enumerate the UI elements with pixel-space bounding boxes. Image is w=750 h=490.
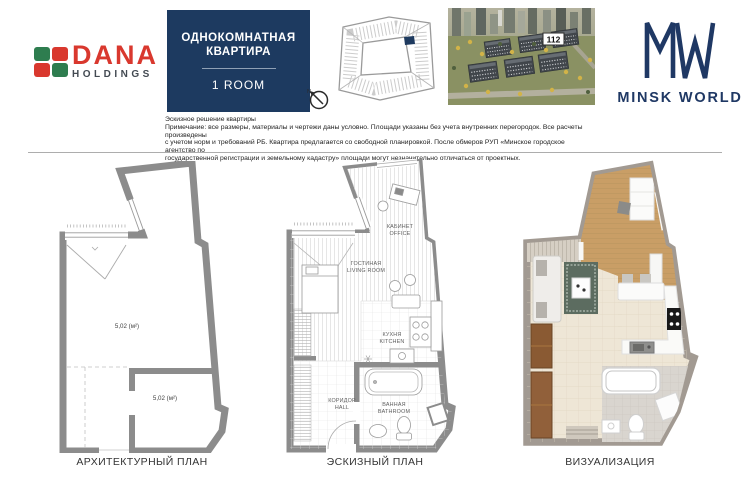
bathroom-sink	[370, 425, 387, 438]
wardrobes	[294, 309, 311, 441]
building-number-badge: 112	[543, 33, 564, 45]
room-label-office-ru: КАБИНЕТ	[387, 224, 414, 230]
armchair	[405, 275, 416, 286]
room-label-living-ru: ГОСТИНАЯ	[351, 261, 382, 267]
entry-opening	[99, 446, 129, 453]
complex-aerial-render: 112	[448, 8, 595, 105]
toilet	[629, 415, 644, 434]
toilet	[398, 417, 411, 434]
office-chair	[378, 201, 388, 211]
apartment-outline	[63, 163, 225, 451]
apartment-type-ru-line1: ОДНОКОМНАТНАЯ	[181, 31, 295, 45]
caption-architectural-plan: АРХИТЕКТУРНЫЙ ПЛАН	[42, 456, 242, 468]
disclaimer-note: Эскизное решение квартиры Примечание: вс…	[165, 116, 597, 163]
logo-square-green	[52, 63, 68, 77]
sofa	[533, 256, 561, 322]
title-divider	[202, 68, 276, 69]
building-floorplate-plan	[330, 8, 438, 108]
room-label-kitchen-en: KITCHEN	[379, 339, 404, 345]
wardrobe-cabinets	[531, 324, 552, 438]
area-label-secondary: 5,02 (м²)	[153, 395, 177, 402]
brochure-page: DANA HOLDINGS ОДНОКОМНАТНАЯ КВАРТИРА 1 R…	[0, 0, 750, 490]
render-interior	[527, 165, 688, 442]
dana-logo-text: DANA HOLDINGS	[72, 42, 158, 80]
kitchen-table	[618, 283, 664, 300]
stove	[410, 317, 431, 347]
room-label-bath-en: BATHROOM	[378, 409, 411, 415]
window-band	[65, 226, 128, 240]
apartment-type-ru-line2: КВАРТИРА	[206, 45, 271, 59]
brand-name: DANA	[72, 42, 158, 68]
architectural-plan: 5,02 (м²) 5,02 (м²)	[55, 161, 237, 453]
armchair	[390, 281, 401, 292]
logo-square-red	[52, 47, 68, 61]
caption-visualization: ВИЗУАЛИЗАЦИЯ	[510, 456, 710, 468]
bath-sink	[602, 420, 620, 433]
room-label-hall-en: HALL	[335, 405, 349, 411]
apartment-type-box: ОДНОКОМНАТНАЯ КВАРТИРА 1 ROOM	[167, 10, 310, 112]
minsk-world-wordmark: MINSK WORLD	[617, 90, 742, 106]
room-label-office-en: OFFICE	[390, 231, 411, 237]
room-label-kitchen-ru: КУХНЯ	[382, 332, 401, 338]
caption-sketch-plan: ЭСКИЗНЫЙ ПЛАН	[275, 456, 475, 468]
minsk-world-logo: MINSK WORLD	[612, 10, 748, 108]
dana-logo-squares-icon	[34, 47, 68, 77]
area-label-main: 5,02 (м²)	[115, 323, 139, 330]
bathtub	[602, 368, 660, 394]
coffee-table	[392, 295, 420, 308]
stove	[667, 308, 681, 330]
pillow	[306, 267, 318, 274]
north-compass-icon: N	[303, 84, 333, 114]
room-label-hall-ru: КОРИДОР	[328, 398, 356, 404]
logo-square-red	[34, 63, 50, 77]
division-line	[411, 72, 434, 88]
apartment-type-en: 1 ROOM	[212, 78, 265, 92]
window-band	[292, 224, 355, 238]
brand-holdings: HOLDINGS	[72, 69, 158, 80]
sketch-plan: КАБИНЕТ OFFICE ГОСТИНАЯ LIVING ROOM КУХН…	[282, 159, 464, 453]
rug	[564, 262, 598, 314]
visualization-plan	[518, 158, 722, 454]
division-line	[405, 23, 430, 37]
highlighted-unit	[404, 36, 415, 45]
kitchen-counter	[431, 301, 442, 351]
mw-monogram-icon	[647, 23, 713, 78]
header-divider	[28, 152, 722, 153]
room-label-living-en: LIVING ROOM	[347, 268, 385, 274]
courtyard	[361, 37, 411, 75]
building-number: 112	[547, 35, 561, 45]
entry-mat	[566, 426, 598, 439]
room-label-bath-ru: ВАННАЯ	[382, 402, 406, 408]
logo-square-green	[34, 47, 50, 61]
compass-needle	[313, 94, 323, 104]
dana-holdings-logo: DANA HOLDINGS	[34, 42, 158, 80]
